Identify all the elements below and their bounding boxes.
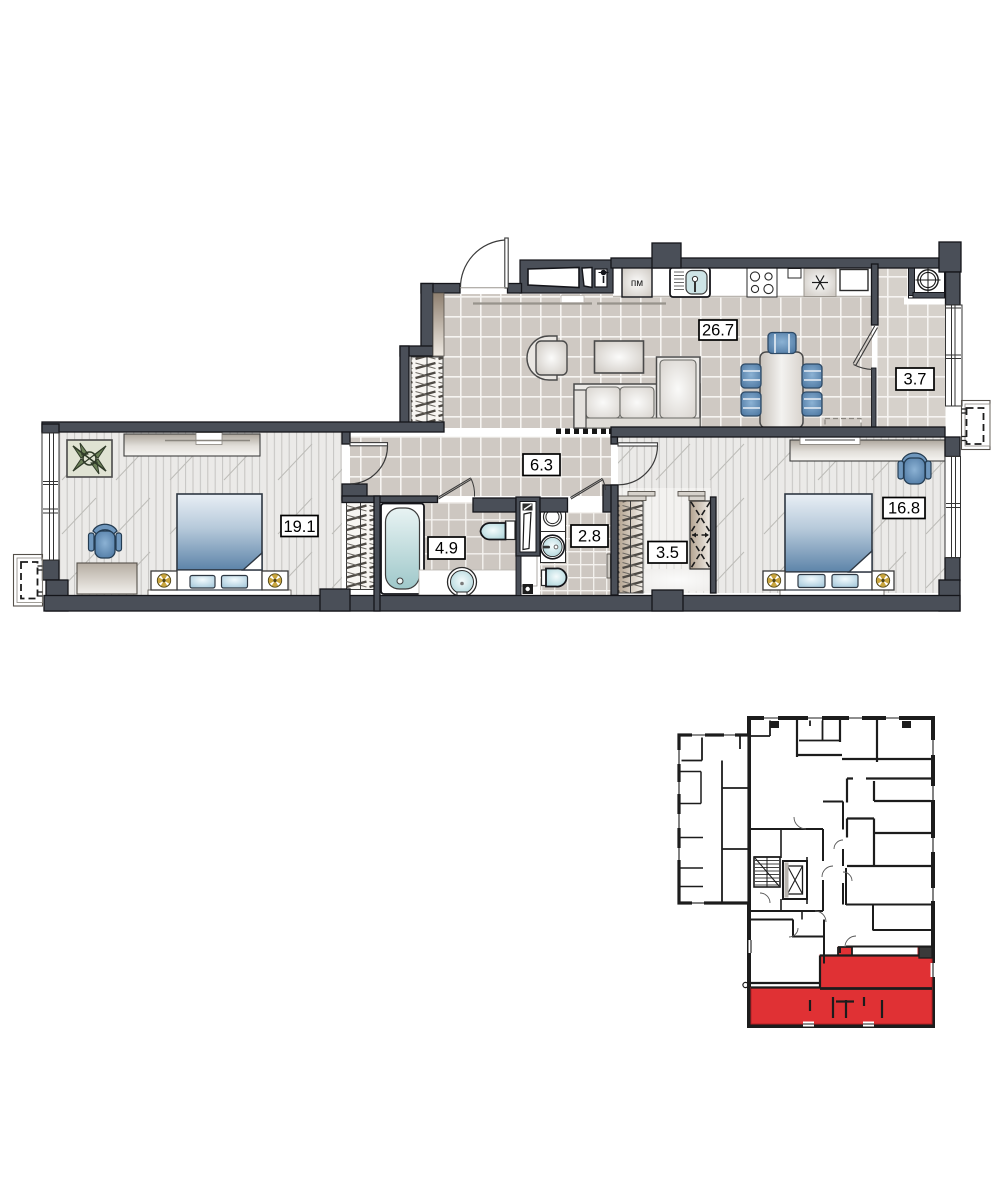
svg-text:3.5: 3.5 xyxy=(656,544,679,562)
svg-text:2.8: 2.8 xyxy=(578,528,601,546)
svg-text:6.3: 6.3 xyxy=(530,457,553,475)
svg-text:3.7: 3.7 xyxy=(904,371,927,389)
svg-text:19.1: 19.1 xyxy=(283,518,315,536)
svg-text:16.8: 16.8 xyxy=(888,500,920,518)
svg-text:пм: пм xyxy=(631,278,643,289)
svg-text:4.9: 4.9 xyxy=(435,540,458,558)
svg-text:26.7: 26.7 xyxy=(702,322,734,340)
